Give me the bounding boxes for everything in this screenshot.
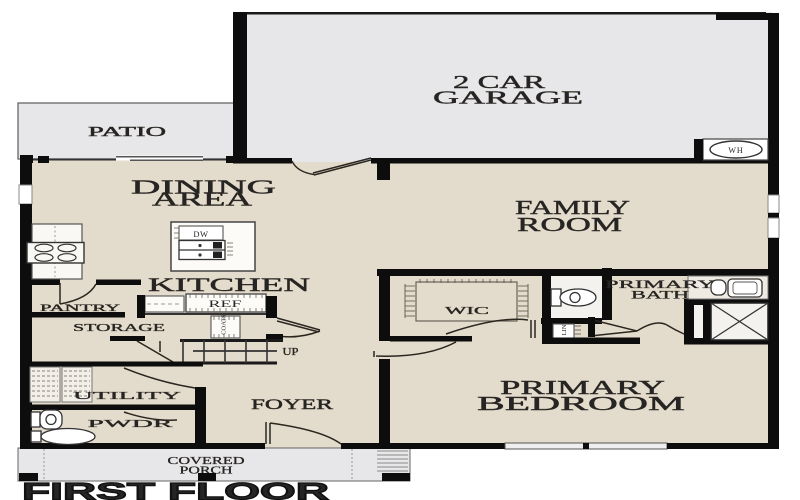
svg-text:FOYER: FOYER <box>251 397 333 413</box>
svg-text:WH: WH <box>728 146 743 155</box>
svg-text:GARAGE: GARAGE <box>433 88 583 108</box>
svg-text:BATH: BATH <box>631 288 690 302</box>
svg-text:KITCHEN: KITCHEN <box>148 275 311 296</box>
svg-text:PATIO: PATIO <box>88 125 166 140</box>
svg-text:AREA: AREA <box>152 189 253 211</box>
svg-text:UP: UP <box>283 347 300 358</box>
svg-text:STORAGE: STORAGE <box>73 322 166 334</box>
svg-text:COATS: COATS <box>221 314 228 335</box>
svg-text:LIN: LIN <box>561 324 568 335</box>
svg-text:ROOM: ROOM <box>517 214 622 236</box>
svg-text:WIC: WIC <box>445 306 489 317</box>
svg-text:PANTRY: PANTRY <box>40 304 120 314</box>
svg-text:DW: DW <box>193 229 208 239</box>
svg-text:BEDROOM: BEDROOM <box>477 393 685 415</box>
svg-text:PWDR: PWDR <box>88 418 175 430</box>
svg-text:UTILITY: UTILITY <box>73 390 181 402</box>
svg-text:FIRST FLOOR: FIRST FLOOR <box>22 479 330 500</box>
svg-text:REF: REF <box>209 299 242 309</box>
